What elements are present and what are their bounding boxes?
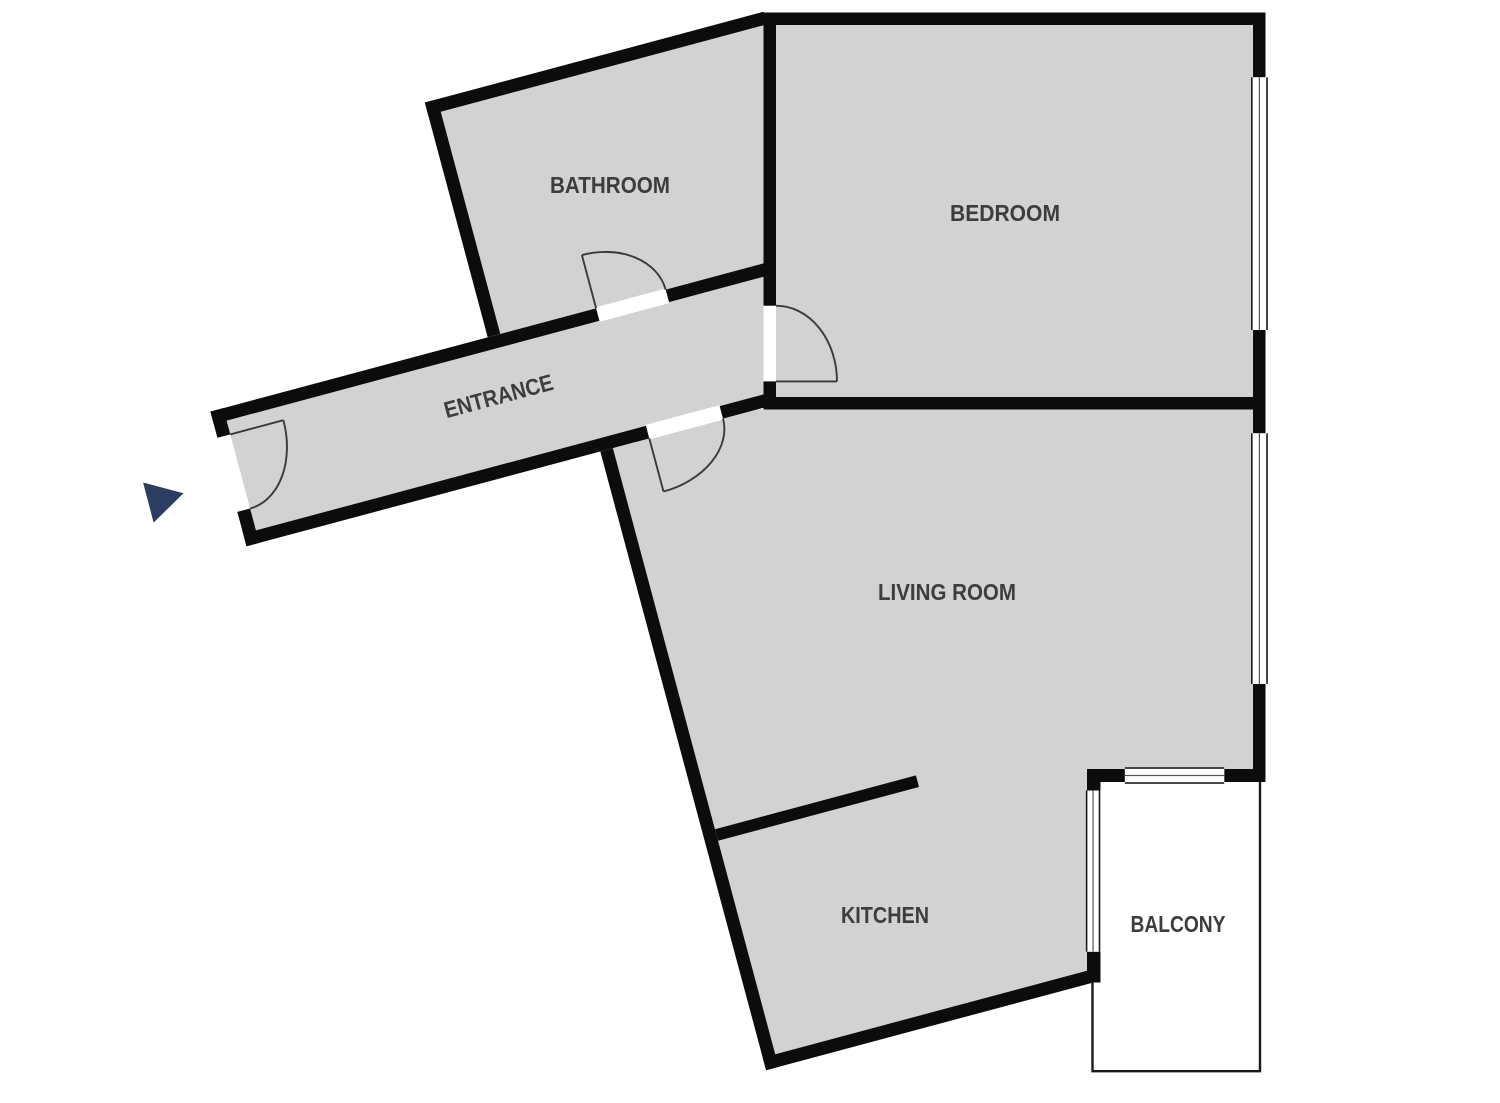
svg-text:LIVING ROOM: LIVING ROOM <box>878 579 1016 605</box>
svg-text:BATHROOM: BATHROOM <box>550 172 670 198</box>
svg-text:BEDROOM: BEDROOM <box>950 200 1060 226</box>
svg-text:BALCONY: BALCONY <box>1131 911 1226 937</box>
svg-text:KITCHEN: KITCHEN <box>841 902 929 928</box>
